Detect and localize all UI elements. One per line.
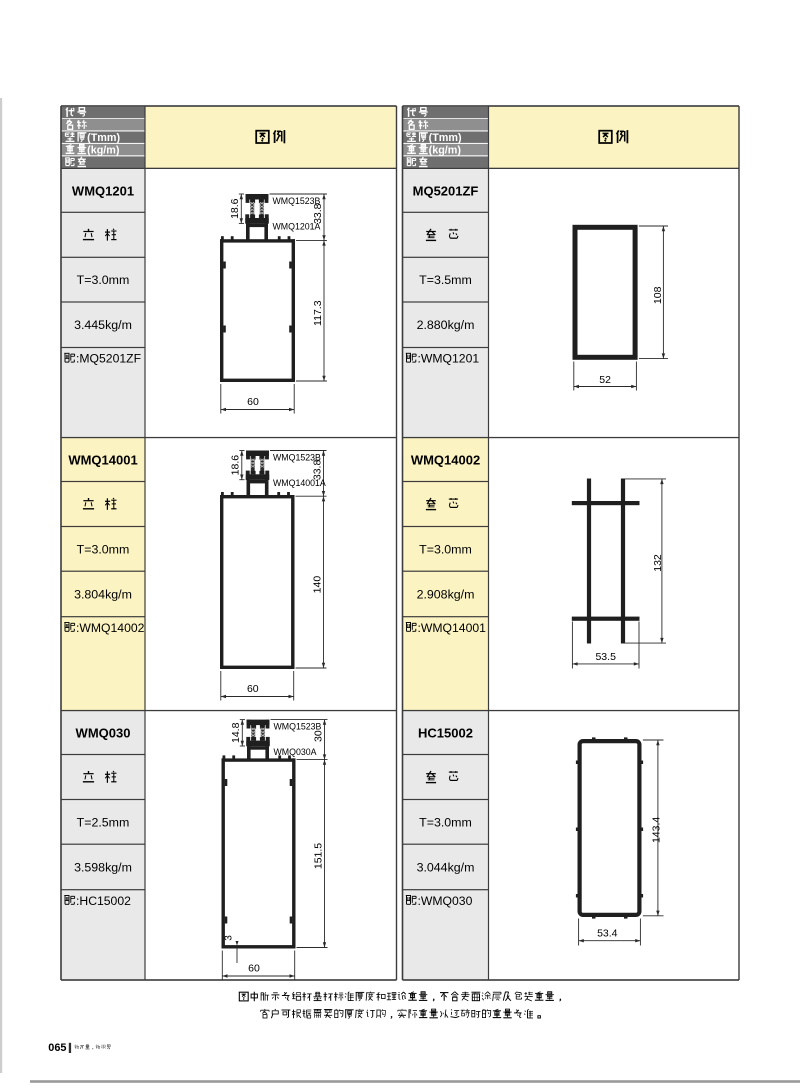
svg-text:60: 60: [248, 963, 260, 975]
svg-text::WMQ14002: :WMQ14002: [76, 621, 145, 635]
svg-text:WMQ1523B: WMQ1523B: [273, 452, 321, 462]
svg-text:WMQ030A: WMQ030A: [274, 747, 317, 757]
svg-text:MQ5201ZF: MQ5201ZF: [413, 183, 479, 198]
svg-text:53.4: 53.4: [597, 928, 618, 940]
svg-text:151.5: 151.5: [313, 843, 325, 869]
svg-text:3.804kg/m: 3.804kg/m: [74, 587, 132, 601]
svg-text:(kg/m): (kg/m): [429, 145, 462, 157]
svg-text:(Tmm): (Tmm): [87, 132, 120, 144]
svg-text:HC15002: HC15002: [418, 726, 473, 741]
svg-text:WMQ1201: WMQ1201: [72, 183, 134, 198]
svg-text:T=3.0mm: T=3.0mm: [77, 273, 130, 287]
svg-text:60: 60: [247, 683, 259, 695]
svg-text:14.8: 14.8: [230, 722, 242, 743]
svg-text:WMQ1201A: WMQ1201A: [273, 222, 321, 232]
svg-text:108: 108: [652, 286, 664, 304]
svg-text:2.880kg/m: 2.880kg/m: [417, 318, 475, 332]
svg-text:065: 065: [48, 1042, 66, 1054]
svg-text:WMQ030: WMQ030: [76, 726, 131, 741]
svg-text::MQ5201ZF: :MQ5201ZF: [76, 352, 141, 366]
svg-text:T=3.0mm: T=3.0mm: [419, 815, 472, 829]
svg-text:3.598kg/m: 3.598kg/m: [74, 860, 132, 874]
svg-text:30: 30: [313, 730, 325, 742]
svg-text:60: 60: [247, 396, 259, 408]
svg-text:143.4: 143.4: [650, 817, 662, 843]
svg-text:(Tmm): (Tmm): [429, 132, 462, 144]
svg-text:T=2.5mm: T=2.5mm: [77, 815, 130, 829]
svg-text:18.6: 18.6: [229, 455, 241, 476]
svg-text:53.5: 53.5: [595, 651, 616, 663]
svg-text:132: 132: [652, 554, 664, 572]
svg-text:WMQ1523B: WMQ1523B: [273, 196, 321, 206]
svg-text:3.445kg/m: 3.445kg/m: [74, 318, 132, 332]
svg-text:WMQ14001A: WMQ14001A: [273, 478, 326, 488]
svg-text::WMQ14001: :WMQ14001: [418, 621, 487, 635]
svg-text:140: 140: [312, 576, 324, 594]
svg-text:WMQ14002: WMQ14002: [411, 453, 480, 468]
svg-text:117.3: 117.3: [312, 300, 324, 326]
svg-text:WMQ1523B: WMQ1523B: [274, 721, 322, 731]
svg-text:T=3.0mm: T=3.0mm: [419, 542, 472, 556]
svg-text:(kg/m): (kg/m): [87, 145, 120, 157]
svg-text::HC15002: :HC15002: [76, 894, 131, 908]
svg-text::WMQ030: :WMQ030: [418, 894, 473, 908]
svg-text:18.6: 18.6: [229, 198, 241, 219]
svg-text:WMQ14001: WMQ14001: [68, 453, 137, 468]
svg-text:52: 52: [599, 374, 611, 386]
svg-text:3: 3: [224, 935, 235, 941]
svg-text:3.044kg/m: 3.044kg/m: [417, 860, 475, 874]
svg-text:T=3.0mm: T=3.0mm: [77, 542, 130, 556]
svg-text:T=3.5mm: T=3.5mm: [419, 273, 472, 287]
svg-text::WMQ1201: :WMQ1201: [418, 352, 480, 366]
svg-text:2.908kg/m: 2.908kg/m: [417, 587, 475, 601]
